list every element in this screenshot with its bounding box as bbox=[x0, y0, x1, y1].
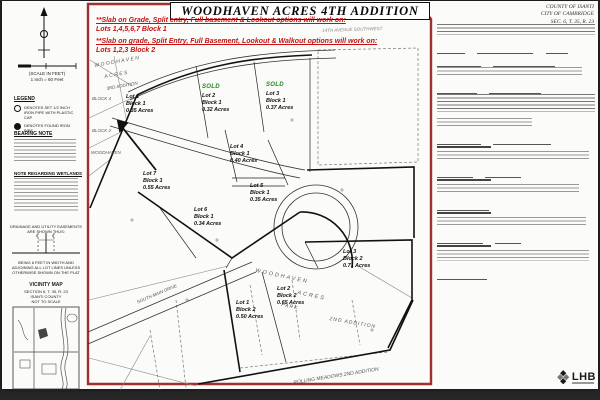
scale-caption: (SCALE IN FEET) bbox=[18, 71, 76, 76]
scale-bar bbox=[16, 62, 78, 70]
filled-circle-icon bbox=[14, 123, 21, 130]
vicinity-map-title: VICINITY MAP bbox=[14, 282, 78, 288]
city-line: CITY OF CAMBRIDGE bbox=[437, 11, 594, 18]
surveyor-certificate bbox=[437, 94, 595, 112]
county-corner-note: COUNTY OF ISANTI CITY OF CAMBRIDGE SEC. … bbox=[437, 4, 594, 26]
recorder-block bbox=[437, 250, 589, 261]
notary-block bbox=[437, 67, 582, 75]
open-circle-icon bbox=[14, 105, 21, 112]
easement-diagram bbox=[10, 231, 82, 257]
date-blank-row bbox=[437, 41, 595, 48]
lhb-logo: LHB bbox=[538, 368, 596, 386]
auditor-block bbox=[437, 217, 586, 225]
lot-label-b1-l3: SOLD Lot 3 Block 1 0.37 Acres bbox=[266, 82, 293, 112]
legend-title: LEGEND bbox=[14, 96, 35, 102]
builder-note-2-lots: Lots 1,2,3 Block 2 bbox=[96, 47, 416, 56]
vicinity-line3: NOT TO SCALE bbox=[14, 299, 78, 304]
city-council-block bbox=[437, 151, 589, 159]
lot-label-b1-l7: Lot 7 Block 1 0.55 Acres bbox=[143, 171, 170, 192]
county-surveyor-signature bbox=[437, 198, 595, 205]
wetlands-note-title: NOTE REGARDING WETLANDS bbox=[14, 171, 82, 176]
section-header-bar bbox=[437, 212, 491, 214]
wetlands-note-text bbox=[14, 178, 78, 212]
bearing-note-text bbox=[14, 139, 76, 163]
lot-label-b1-l4: Lot 4 Block 1 0.40 Acres bbox=[230, 144, 257, 165]
north-arrow-icon bbox=[30, 6, 58, 62]
surveyor-signature-row bbox=[437, 132, 595, 139]
adjacent-plat-label: WOODHAVEN bbox=[91, 150, 121, 155]
lot-label-b1-l2: SOLD Lot 2 Block 1 0.32 Acres bbox=[202, 84, 229, 114]
certificate-panel bbox=[437, 24, 595, 280]
lot-label-b1-l5: Lot 5 Block 1 0.35 Acres bbox=[250, 183, 277, 204]
lot-label-b2-l3: Lot 3 Block 2 0.71 Acres bbox=[343, 249, 370, 270]
lhb-tagline bbox=[572, 382, 594, 384]
lot-label-b2-l1: Lot 1 Block 2 0.50 Acres bbox=[236, 300, 263, 321]
recorder-signature bbox=[437, 267, 595, 274]
notary-signature-row bbox=[437, 81, 595, 88]
vicinity-map bbox=[12, 306, 80, 390]
lhb-diamond-icon bbox=[556, 370, 570, 384]
auditor-signature bbox=[437, 231, 595, 238]
builder-note-2: **Slab on grade, Split Entry, Full Basem… bbox=[96, 38, 416, 56]
legend-item: DENOTES SET 1/2 INCH IRON PIPE WITH PLAS… bbox=[14, 105, 78, 121]
bearing-note-title: BEARING NOTE bbox=[14, 131, 52, 137]
builder-note-1-text: **Slab on Grade, Split entry, Full basem… bbox=[96, 17, 416, 26]
legend-items: DENOTES SET 1/2 INCH IRON PIPE WITH PLAS… bbox=[14, 103, 78, 133]
lot-label-b1-l6: Lot 6 Block 1 0.34 Acres bbox=[194, 207, 221, 228]
block-label: BLOCK 2 bbox=[92, 128, 111, 133]
county-surveyor-block bbox=[437, 184, 579, 192]
lot-label-b1-l1: Lot 1 Block 1 0.35 Acres bbox=[126, 94, 153, 115]
scale-ratio: 1 Inch = 60 Feet bbox=[18, 77, 76, 82]
easement-width-left: 6 bbox=[36, 233, 38, 238]
easement-width-right: 6 bbox=[52, 233, 54, 238]
sold-badge: SOLD bbox=[202, 84, 229, 92]
easement-caption: BEING 6 FEET IN WIDTH AND ADJOINING ALL … bbox=[8, 260, 84, 276]
section-header-bar bbox=[437, 146, 491, 148]
dedication-paragraph bbox=[437, 24, 595, 35]
surveyor-name-block bbox=[437, 118, 532, 126]
builder-note-2-text: **Slab on grade, Split Entry, Full Basem… bbox=[96, 38, 416, 47]
signature-row bbox=[437, 54, 595, 61]
city-signature-row bbox=[437, 165, 595, 172]
sold-badge: SOLD bbox=[266, 82, 293, 90]
section-header-bar bbox=[437, 245, 491, 247]
block-label: BLOCK 4 bbox=[92, 96, 111, 101]
county-line: COUNTY OF ISANTI bbox=[437, 4, 594, 11]
